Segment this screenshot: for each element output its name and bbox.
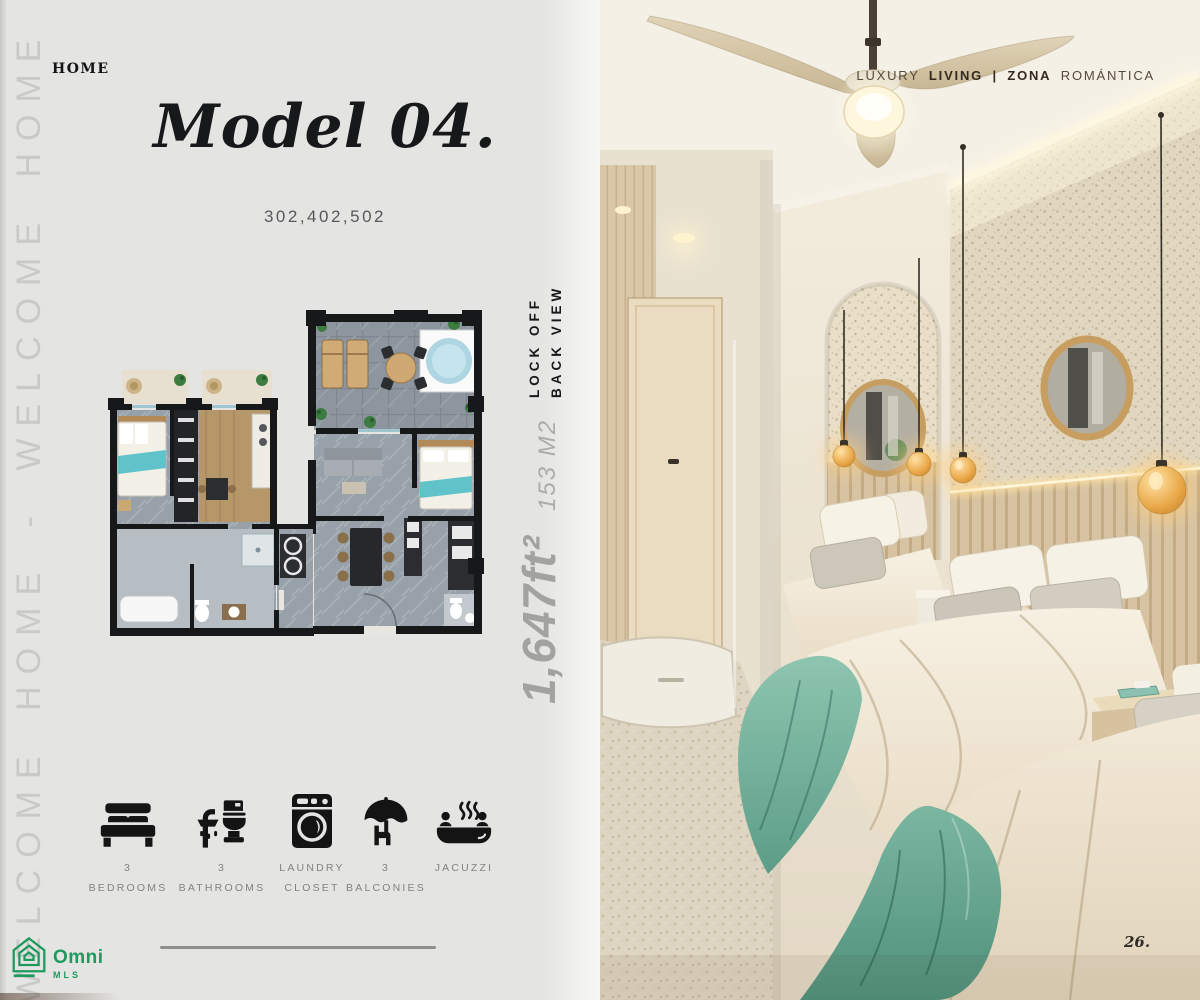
area-sqft: 1,647ft² (513, 535, 565, 704)
bedroom-photo: LUXURY LIVING | ZONA ROMÁNTICA 26. (600, 0, 1200, 1000)
laundry-icon (290, 794, 334, 848)
divider-line (160, 946, 436, 949)
omni-house-icon (12, 936, 46, 986)
bathroom-icon (194, 800, 250, 848)
page-number: 26. (1124, 933, 1150, 951)
logo-sub: MLS (53, 970, 104, 980)
floor-shadow (600, 955, 1200, 1000)
plan-area-label: 1,647ft²153 M2 (512, 419, 566, 704)
logo-brand: Omni (53, 947, 104, 969)
plan-left-unit (108, 370, 278, 636)
lock-off-label: LOCK OFF (524, 285, 546, 398)
page-title: Model 04. (25, 92, 625, 162)
feature-bedrooms: 3BEDROOMS (76, 790, 180, 899)
photo-caption: LUXURY LIVING | ZONA ROMÁNTICA (600, 68, 1155, 83)
balcony-icon (361, 796, 411, 848)
caption-luxury: LUXURY (856, 68, 919, 83)
unit-numbers: 302,402,502 (25, 207, 625, 227)
caption-zona: ZONA (1007, 68, 1051, 83)
bed-icon (99, 802, 157, 848)
back-view-label: BACK VIEW (546, 285, 568, 398)
bedroom-render (600, 0, 1200, 1000)
floor-plan (102, 310, 494, 644)
bottom-edge-shade (0, 993, 120, 1000)
plan-connector (274, 524, 314, 636)
left-panel: WELCOME HOME - WELCOME HOME HOME Model 0… (0, 0, 600, 1000)
feature-jacuzzi: JACUZZI (412, 790, 516, 878)
plan-view-label: LOCK OFF BACK VIEW (524, 285, 567, 398)
jacuzzi-icon (436, 800, 492, 848)
brochure-page: WELCOME HOME - WELCOME HOME HOME Model 0… (0, 0, 1200, 1000)
home-label: HOME (52, 61, 110, 77)
omni-logo: Omni MLS (12, 936, 104, 986)
edge-vertical-text: WELCOME HOME - WELCOME HOME (10, 28, 49, 1000)
caption-living: LIVING (929, 68, 983, 83)
feature-label: 3BEDROOMS (76, 858, 180, 899)
feature-label: 3BATHROOMS (170, 858, 274, 899)
left-edge-shade (0, 0, 7, 1000)
feature-bathrooms: 3BATHROOMS (170, 790, 274, 899)
area-m2: 153 M2 (534, 419, 561, 511)
feature-label: JACUZZI (412, 858, 516, 878)
caption-separator: | (992, 68, 997, 83)
plan-right-unit (306, 310, 484, 634)
caption-romantica: ROMÁNTICA (1061, 68, 1155, 83)
